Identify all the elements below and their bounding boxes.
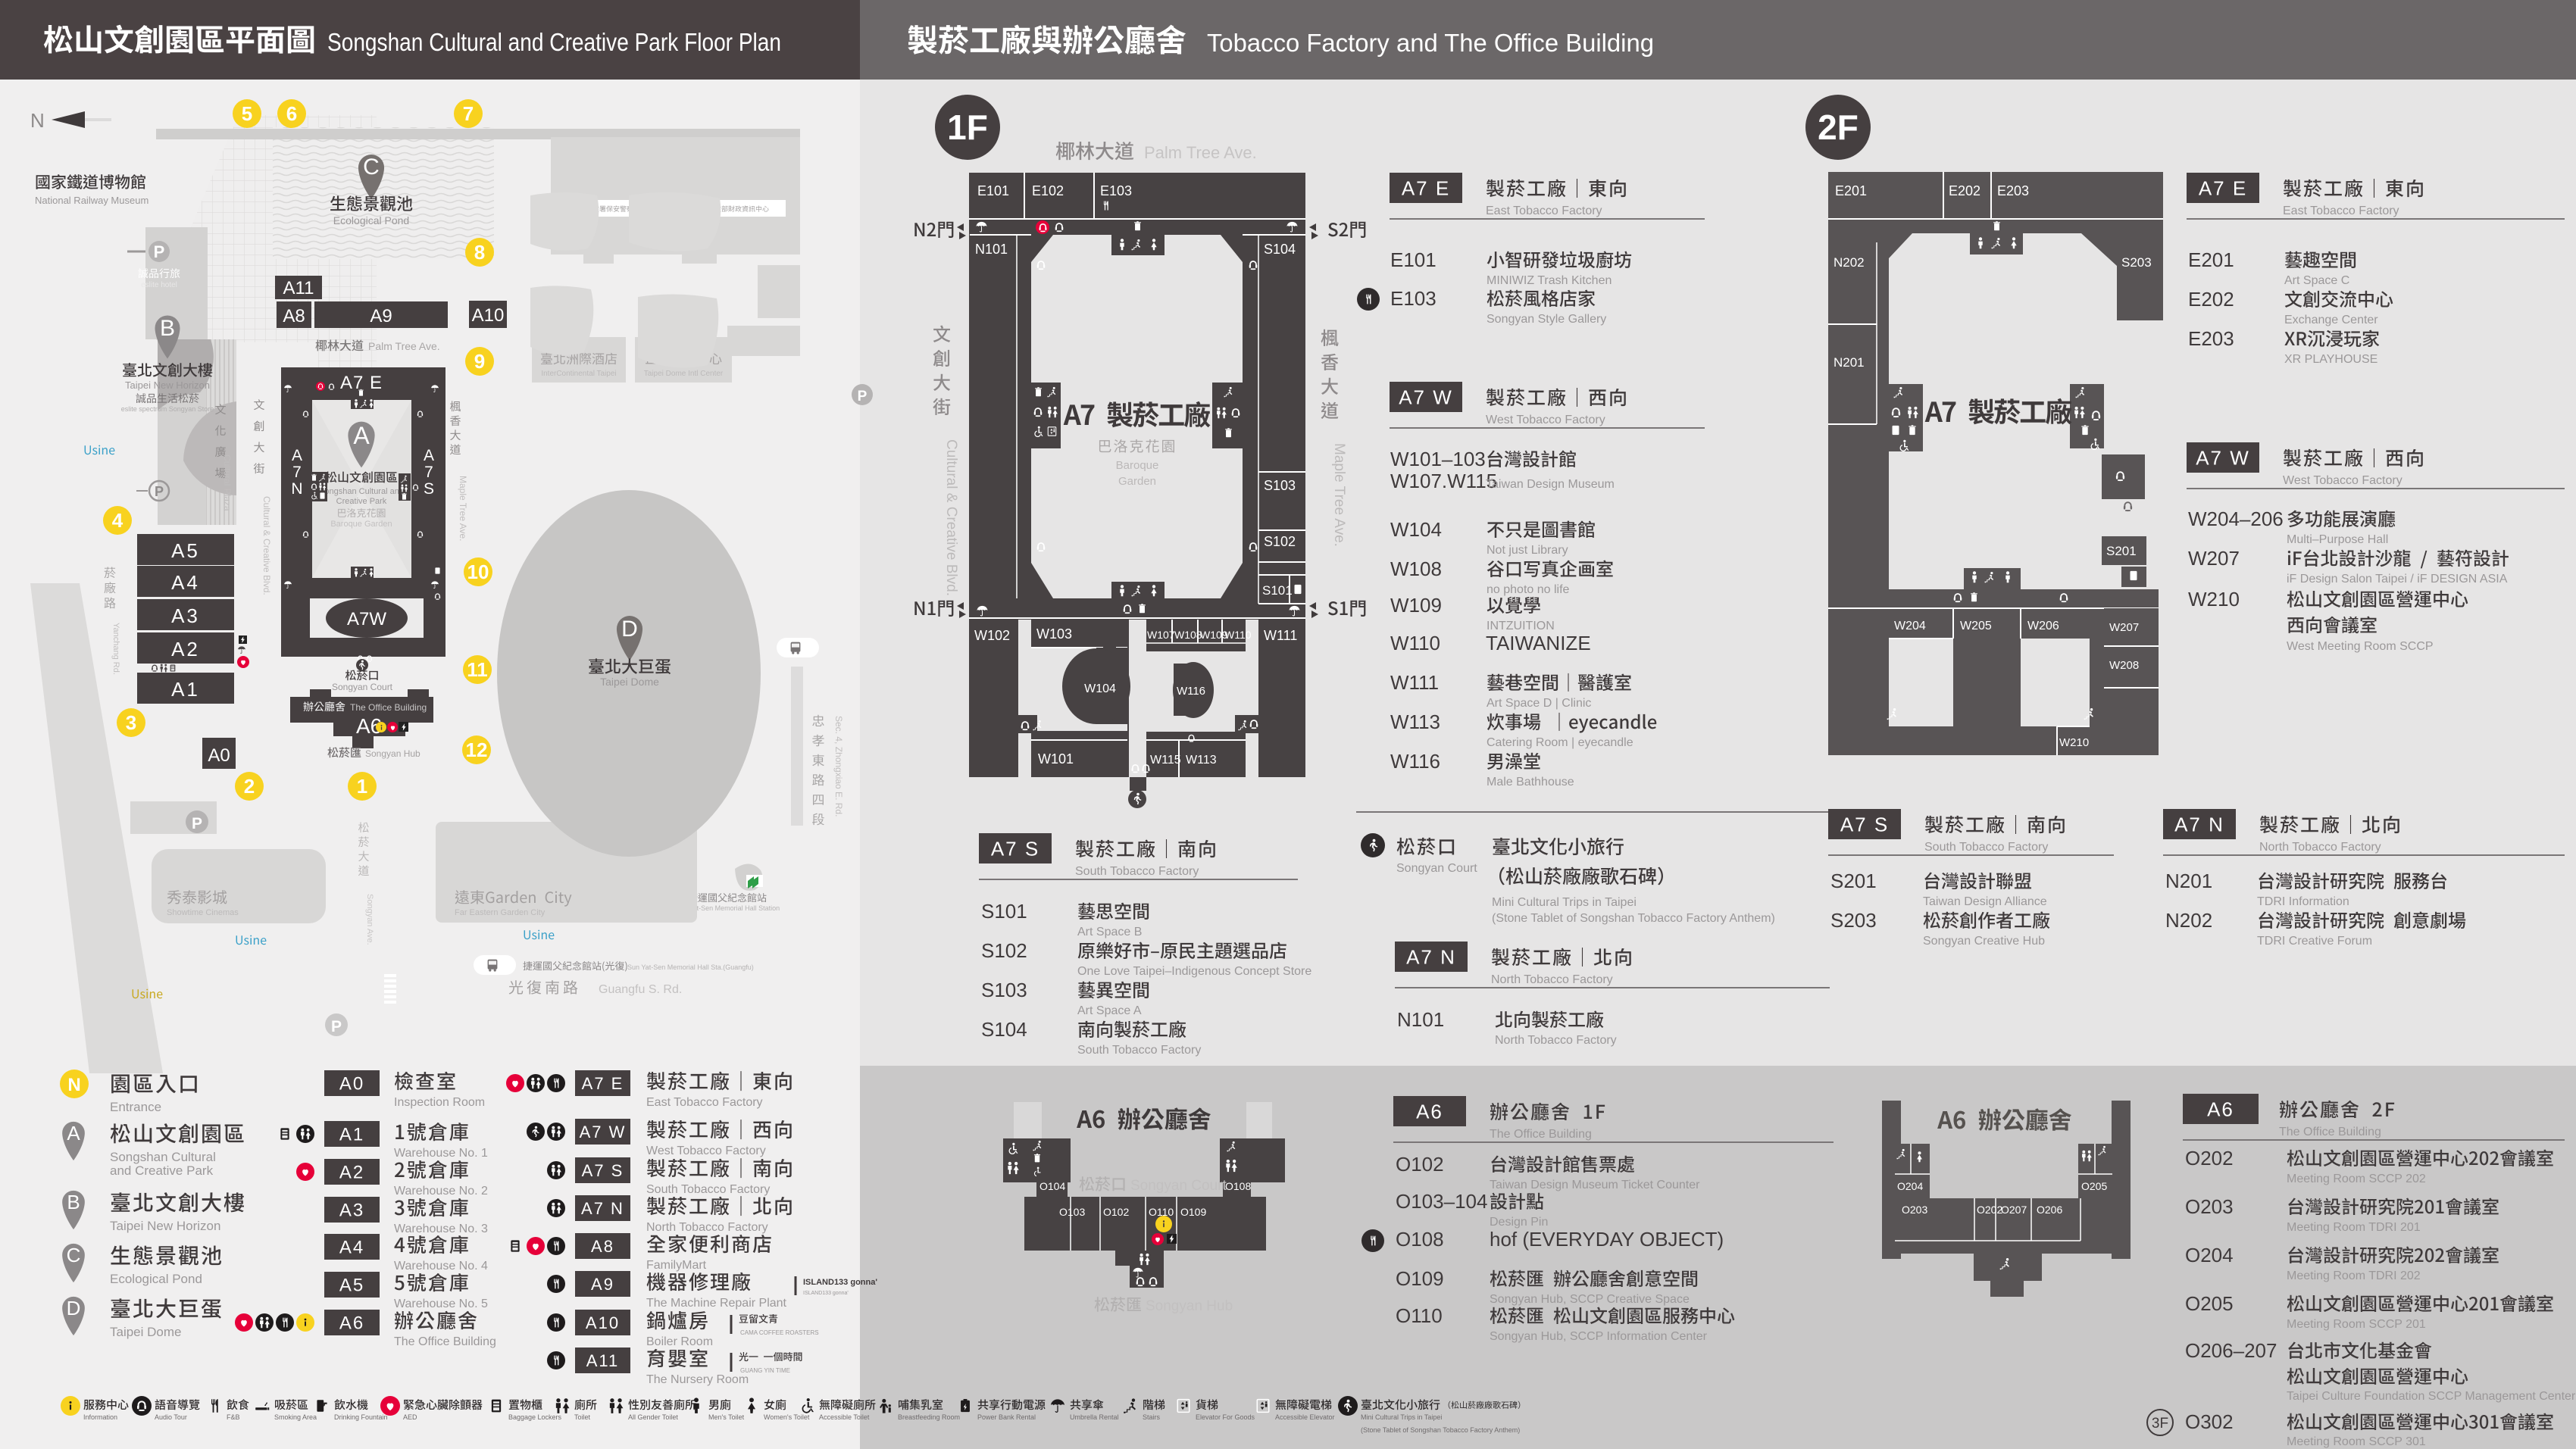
svg-text:O102: O102 [1103,1206,1129,1218]
svg-text:TDRI Creative Forum: TDRI Creative Forum [2257,935,2372,948]
svg-text:11: 11 [467,658,488,681]
svg-text:W113: W113 [1390,710,1440,733]
svg-text:North Tobacco Factory: North Tobacco Factory [2259,841,2381,854]
svg-text:Songyan Court: Songyan Court [1396,862,1477,875]
svg-text:A5: A5 [171,539,200,562]
svg-text:ISLAND133 gonna': ISLAND133 gonna' [803,1278,877,1287]
svg-text:O205: O205 [2081,1180,2107,1192]
svg-text:The Machine Repair Plant: The Machine Repair Plant [646,1297,787,1310]
svg-text:S203: S203 [1830,909,1877,932]
svg-text:W210: W210 [2059,736,2089,749]
svg-text:Taipei Dome Intl Center: Taipei Dome Intl Center [644,370,724,378]
svg-text:W207: W207 [2188,547,2240,570]
svg-text:O102: O102 [1396,1153,1444,1176]
svg-text:Taiwan Design Museum Ticket Co: Taiwan Design Museum Ticket Counter [1490,1179,1700,1191]
svg-text:A8: A8 [591,1237,614,1256]
svg-text:N: N [291,480,302,498]
svg-text:W206: W206 [2027,620,2059,632]
svg-text:Palm Tree Ave.: Palm Tree Ave. [368,340,440,352]
svg-text:N: N [30,109,45,132]
svg-text:W115: W115 [1150,754,1181,767]
svg-text:no photo no life: no photo no life [1487,583,1570,596]
svg-text:O205: O205 [2185,1292,2234,1315]
svg-text:Songyan Style Gallery: Songyan Style Gallery [1487,313,1606,326]
svg-text:Catering Room | eyecandle: Catering Room | eyecandle [1487,736,1633,749]
svg-text:ISLAND133 gonna': ISLAND133 gonna' [803,1291,849,1296]
svg-text:The Office Building: The Office Building [1490,1128,1592,1141]
svg-text:National Railway Museum: National Railway Museum [35,195,148,206]
svg-text:A7 N: A7 N [2174,813,2224,835]
svg-text:W210: W210 [2188,588,2240,611]
svg-text:A8: A8 [283,306,305,326]
svg-text:South Tobacco Factory: South Tobacco Factory [1075,865,1199,878]
svg-text:2: 2 [244,775,255,798]
svg-text:E201: E201 [2188,248,2234,271]
svg-text:Songshan Cultural and: Songshan Cultural and [319,487,404,496]
svg-text:W111: W111 [1264,628,1297,643]
svg-text:O202: O202 [1977,1204,2002,1216]
svg-text:A6: A6 [1416,1100,1443,1123]
svg-text:AED: AED [403,1413,417,1421]
svg-text:O108: O108 [1396,1228,1444,1251]
svg-text:A7W: A7W [347,609,386,629]
svg-text:Taipei Culture Foundation SCCP: Taipei Culture Foundation SCCP Managemen… [2287,1390,2576,1403]
svg-text:Warehouse No. 1: Warehouse No. 1 [394,1147,488,1160]
svg-text:Songyan Creative Hub: Songyan Creative Hub [1923,935,2045,948]
svg-text:P: P [154,242,165,261]
svg-text:Baggage Lockers: Baggage Lockers [508,1413,562,1421]
svg-text:A7 W: A7 W [2196,446,2250,469]
svg-text:6: 6 [286,102,297,125]
svg-text:A2: A2 [339,1163,364,1183]
svg-text:S102: S102 [981,939,1027,962]
svg-text:Cultural & Creative Blvd.: Cultural & Creative Blvd. [261,496,272,595]
svg-text:A3: A3 [339,1201,364,1221]
svg-text:A0: A0 [208,745,230,766]
svg-text:A9: A9 [370,306,392,326]
svg-text:The Office Building: The Office Building [2279,1126,2381,1138]
svg-text:A0: A0 [339,1074,364,1095]
svg-text:Taiwan Design Museum: Taiwan Design Museum [1486,478,1615,491]
svg-text:Art Space C: Art Space C [2284,274,2349,287]
svg-text:Exchange Center: Exchange Center [2284,314,2378,326]
svg-text:A1: A1 [339,1125,364,1145]
svg-text:S203: S203 [2121,255,2152,270]
svg-text:O203: O203 [1902,1204,1927,1216]
svg-text:1F: 1F [947,108,988,147]
svg-text:Taipei New Horizon: Taipei New Horizon [110,1219,220,1233]
svg-text:E203: E203 [2188,327,2234,350]
svg-text:A1: A1 [171,678,200,701]
svg-text:P: P [858,389,868,404]
svg-text:S101: S101 [1262,583,1293,598]
svg-text:A11: A11 [283,278,314,298]
svg-text:A6: A6 [339,1313,364,1334]
svg-text:4: 4 [112,509,123,532]
svg-text:A: A [292,447,302,464]
svg-text:O206: O206 [2037,1204,2062,1216]
svg-text:Showtime Cinemas: Showtime Cinemas [167,908,239,917]
svg-text:W101: W101 [1038,751,1074,767]
svg-text:Songyan Ave.: Songyan Ave. [365,894,374,945]
svg-text:W109: W109 [1390,594,1442,617]
svg-text:Meeting Room SCCP 201: Meeting Room SCCP 201 [2287,1318,2426,1331]
svg-text:Creative Park: Creative Park [336,497,387,506]
svg-text:Songyan Hub, SCCP Information: Songyan Hub, SCCP Information Center [1490,1330,1708,1343]
svg-text:North Tobacco Factory: North Tobacco Factory [1491,973,1613,986]
svg-text:O302: O302 [2185,1410,2234,1433]
svg-text:Yanchang Rd.: Yanchang Rd. [111,623,120,675]
svg-text:A4: A4 [171,571,200,594]
svg-text:North Tobacco Factory: North Tobacco Factory [1495,1034,1617,1047]
svg-text:INTZUITION: INTZUITION [1487,620,1555,632]
svg-text:W110: W110 [1390,632,1440,654]
svg-text:B: B [67,1191,80,1213]
svg-text:W208: W208 [2109,659,2139,672]
svg-text:Information: Information [83,1413,117,1421]
svg-text:O109: O109 [1396,1267,1444,1290]
svg-text:A9: A9 [591,1275,614,1294]
svg-text:D: D [621,617,638,642]
svg-text:N: N [67,1075,80,1095]
svg-text:A: A [353,422,370,449]
svg-text:N101: N101 [975,242,1008,257]
svg-text:A7 E: A7 E [2199,176,2247,199]
svg-text:W110: W110 [1224,629,1252,641]
svg-text:West Tobacco Factory: West Tobacco Factory [1486,414,1605,426]
svg-text:Songshan Cultural: Songshan Cultural [110,1150,216,1164]
svg-text:Sec. 4, Zhongxiao E. Rd.: Sec. 4, Zhongxiao E. Rd. [833,716,844,817]
svg-text:Mini Cultural Trips in Taipei: Mini Cultural Trips in Taipei [1361,1413,1442,1421]
svg-text:7: 7 [463,102,474,125]
svg-text:A: A [424,447,434,464]
svg-text:Art Space A: Art Space A [1077,1004,1142,1017]
svg-text:E101: E101 [977,183,1009,198]
svg-text:12: 12 [466,739,488,761]
svg-text:Accessible Elevator: Accessible Elevator [1275,1413,1335,1421]
svg-text:E101: E101 [1390,248,1436,271]
svg-text:O104: O104 [1039,1180,1065,1192]
svg-text:Umbrella Rental: Umbrella Rental [1070,1413,1119,1421]
svg-text:A7 S: A7 S [582,1161,624,1180]
svg-text:Warehouse No. 4: Warehouse No. 4 [394,1260,488,1273]
svg-text:Palm Tree Ave.: Palm Tree Ave. [1144,143,1257,162]
svg-text:S103: S103 [981,979,1027,1001]
svg-text:P: P [331,1018,342,1035]
svg-text:3F: 3F [2152,1416,2168,1432]
svg-text:Far Eastern Garden City: Far Eastern Garden City [455,908,546,917]
svg-text:A7 N: A7 N [581,1199,624,1218]
svg-text:S104: S104 [1264,242,1296,257]
svg-text:O206–207: O206–207 [2185,1339,2277,1362]
svg-text:A11: A11 [586,1351,620,1370]
svg-text:The Office Building: The Office Building [350,702,427,713]
svg-text:Warehouse No. 3: Warehouse No. 3 [394,1223,488,1235]
svg-text:W205: W205 [1960,620,1992,632]
svg-text:Drinking Fountain: Drinking Fountain [334,1413,388,1421]
svg-text:eslite hotel: eslite hotel [141,281,177,289]
svg-text:Maple Tree Ave.: Maple Tree Ave. [458,476,468,542]
svg-text:W204: W204 [1894,620,1926,632]
svg-text:Ecological Pond: Ecological Pond [333,214,409,226]
svg-text:Warehouse No. 2: Warehouse No. 2 [394,1185,488,1198]
svg-text:O109: O109 [1180,1206,1206,1218]
svg-text:O204: O204 [1897,1180,1923,1192]
svg-text:Smoking Area: Smoking Area [274,1413,317,1421]
svg-text:Breastfeeding Room: Breastfeeding Room [898,1413,960,1421]
svg-text:Boiler Room: Boiler Room [646,1335,713,1348]
svg-text:Songyan Court: Songyan Court [1130,1178,1227,1194]
svg-text:W108: W108 [1174,629,1202,641]
svg-text:Taiwan Design Alliance: Taiwan Design Alliance [1923,895,2047,908]
svg-text:7: 7 [424,464,433,481]
svg-text:South Tobacco Factory: South Tobacco Factory [1077,1044,1201,1057]
svg-text:Elevator For Goods: Elevator For Goods [1196,1413,1255,1421]
svg-text:Baroque: Baroque [1116,459,1159,472]
svg-text:O108: O108 [1225,1180,1251,1192]
svg-text:8: 8 [474,241,485,264]
svg-text:Taipei New Horizon: Taipei New Horizon [125,379,210,391]
svg-text:East Tobacco Factory: East Tobacco Factory [1486,205,1602,217]
svg-text:All Gender Toilet: All Gender Toilet [628,1413,678,1421]
svg-text:W102: W102 [974,628,1010,643]
svg-text:O204: O204 [2185,1244,2234,1266]
svg-text:O203: O203 [2185,1195,2234,1218]
svg-text:East Tobacco Factory: East Tobacco Factory [2283,205,2399,217]
svg-text:C: C [363,155,380,180]
svg-text:O207: O207 [2001,1204,2027,1216]
svg-text:A7 S: A7 S [991,837,1039,860]
svg-text:W104: W104 [1390,518,1442,541]
svg-text:Multi–Purpose Hall: Multi–Purpose Hall [2287,533,2388,546]
svg-text:Cultural & Creative Blvd.: Cultural & Creative Blvd. [943,439,959,596]
svg-text:TDRI Information: TDRI Information [2257,895,2349,908]
svg-text:One Love Taipei–Indigenous Con: One Love Taipei–Indigenous Concept Store [1077,965,1311,978]
svg-text:Male Bathhouse: Male Bathhouse [1487,776,1574,789]
svg-text:GUANG YIN TIME: GUANG YIN TIME [740,1367,790,1374]
svg-text:eslite spectrum Songyan Store: eslite spectrum Songyan Store [121,405,214,413]
svg-text:O202: O202 [2185,1147,2234,1170]
svg-text:W116: W116 [1390,750,1440,773]
svg-text:Art Space D | Clinic: Art Space D | Clinic [1487,697,1591,710]
svg-text:A2: A2 [171,638,200,660]
svg-text:Ecological Pond: Ecological Pond [110,1272,202,1286]
svg-text:W207: W207 [2109,621,2139,634]
svg-text:Audio Tour: Audio Tour [155,1413,187,1421]
svg-text:TAIWANIZE: TAIWANIZE [1486,632,1591,654]
svg-text:F&B: F&B [227,1413,240,1421]
svg-text:A7 W: A7 W [580,1123,627,1141]
svg-text:A7 N: A7 N [1406,945,1456,968]
svg-text:N202: N202 [2165,909,2212,932]
svg-text:Meeting Room SCCP 301: Meeting Room SCCP 301 [2287,1435,2426,1448]
svg-text:D: D [67,1297,81,1319]
svg-text:InterContinental Taipei: InterContinental Taipei [541,370,616,378]
svg-text:A5: A5 [339,1276,364,1296]
svg-text:O103: O103 [1059,1206,1085,1218]
svg-text:A7 W: A7 W [1399,386,1453,408]
svg-text:E202: E202 [1949,183,1980,198]
svg-text:Maple Tree Ave.: Maple Tree Ave. [1331,443,1347,547]
svg-text:N201: N201 [1834,355,1865,370]
svg-text:E103: E103 [1390,287,1436,310]
svg-text:W107.W115: W107.W115 [1390,470,1497,492]
svg-text:O110: O110 [1396,1304,1443,1327]
svg-text:A10: A10 [472,305,505,326]
svg-text:A4: A4 [339,1238,364,1258]
svg-text:W113: W113 [1186,754,1217,767]
svg-text:Baroque Garden: Baroque Garden [330,520,392,529]
svg-text:S102: S102 [1264,534,1296,549]
svg-text:E201: E201 [1835,183,1867,198]
svg-text:Songyan Court: Songyan Court [332,682,393,692]
svg-text:A: A [67,1122,80,1145]
svg-text:Accessible Toilet: Accessible Toilet [819,1413,870,1421]
svg-text:CAMA COFFEE ROASTERS: CAMA COFFEE ROASTERS [740,1329,819,1336]
svg-text:E202: E202 [2188,288,2234,311]
svg-text:Sun Yat-Sen Memorial Hall Sta.: Sun Yat-Sen Memorial Hall Sta.(Guangfu) [627,963,754,971]
svg-text:Songyan Hub: Songyan Hub [365,748,420,759]
svg-text:W111: W111 [1390,671,1439,694]
svg-text:Toilet: Toilet [574,1413,591,1421]
svg-text:N101: N101 [1397,1008,1444,1031]
svg-text:9: 9 [474,350,485,373]
svg-text:S: S [424,480,434,498]
svg-text:Songyan Hub, SCCP Creative Spa: Songyan Hub, SCCP Creative Space [1490,1293,1690,1306]
svg-text:Taipei Dome: Taipei Dome [110,1325,182,1339]
svg-text:North Tobacco Factory: North Tobacco Factory [646,1221,768,1234]
svg-text:W101–103: W101–103 [1390,448,1486,470]
svg-text:Inspection Room: Inspection Room [394,1096,485,1109]
svg-text:E103: E103 [1100,183,1132,198]
svg-text:West Tobacco Factory: West Tobacco Factory [2283,474,2402,487]
svg-text:S101: S101 [981,900,1027,923]
svg-text:(Stone Tablet of Songshan Toba: (Stone Tablet of Songshan Tobacco Factor… [1492,912,1775,925]
svg-text:O103–104: O103–104 [1396,1190,1487,1213]
svg-text:E203: E203 [1997,183,2029,198]
svg-text:Entrance: Entrance [110,1100,161,1114]
svg-text:Mini Cultural Trips in Taipei: Mini Cultural Trips in Taipei [1492,896,1637,909]
svg-text:Meeting Room SCCP 202: Meeting Room SCCP 202 [2287,1173,2426,1185]
svg-text:(Stone Tablet of Songshan Toba: (Stone Tablet of Songshan Tobacco Factor… [1361,1426,1520,1434]
svg-text:iF Design Salon Taipei / iF DE: iF Design Salon Taipei / iF DESIGN ASIA [2287,573,2508,586]
svg-text:Garden: Garden [1118,475,1156,488]
svg-text:W107: W107 [1147,629,1175,641]
svg-text:A7 S: A7 S [1840,813,1889,835]
svg-text:Songyan Hub: Songyan Hub [1146,1298,1233,1314]
svg-text:and Creative Park: and Creative Park [110,1163,214,1178]
svg-text:The Office Building: The Office Building [394,1335,496,1348]
svg-text:N202: N202 [1834,255,1865,270]
svg-text:1: 1 [357,775,367,798]
svg-text:A7 E: A7 E [582,1074,624,1093]
svg-text:The Nursery Room: The Nursery Room [646,1373,749,1386]
svg-text:A3: A3 [171,604,200,627]
svg-text:Men's Toilet: Men's Toilet [708,1413,745,1421]
svg-text:Power Bank Rental: Power Bank Rental [977,1413,1036,1421]
svg-text:Songshan Cultural and Creative: Songshan Cultural and Creative Park Floo… [327,28,781,56]
svg-text:E102: E102 [1032,183,1064,198]
svg-text:East Tobacco Factory: East Tobacco Factory [646,1096,763,1109]
svg-text:Stairs: Stairs [1143,1413,1161,1421]
svg-text:W104: W104 [1084,682,1116,695]
svg-text:C: C [67,1244,81,1266]
svg-text:A7 E: A7 E [1402,176,1450,199]
svg-text:S201: S201 [1830,870,1877,892]
svg-text:Tobacco Factory and The Office: Tobacco Factory and The Office Building [1207,29,1654,57]
svg-text:5: 5 [242,102,252,125]
svg-text:W103: W103 [1036,626,1072,642]
svg-text:P: P [155,484,164,499]
svg-text:Art Space B: Art Space B [1077,926,1142,938]
svg-text:Guangfu S. Rd.: Guangfu S. Rd. [599,983,682,996]
svg-text:FamilyMart: FamilyMart [646,1259,707,1272]
svg-text:West Meeting Room SCCP: West Meeting Room SCCP [2287,640,2434,653]
svg-text:P: P [192,815,202,832]
svg-text:Cultural Plaza: Cultural Plaza [222,454,233,511]
svg-text:Meeting Room TDRI 201: Meeting Room TDRI 201 [2287,1221,2421,1234]
svg-text:Not just Library: Not just Library [1487,544,1568,557]
svg-text:South Tobacco Factory: South Tobacco Factory [1924,841,2048,854]
svg-text:N201: N201 [2165,870,2212,892]
svg-text:10: 10 [467,561,489,583]
svg-text:South Tobacco Factory: South Tobacco Factory [646,1183,770,1196]
svg-text:XR PLAYHOUSE: XR PLAYHOUSE [2284,353,2377,366]
svg-text:S201: S201 [2106,544,2137,558]
svg-text:S103: S103 [1264,478,1296,493]
svg-text:A6: A6 [2207,1098,2234,1120]
svg-text:S104: S104 [981,1018,1027,1041]
svg-text:W108: W108 [1390,557,1442,580]
svg-text:Women's Toilet: Women's Toilet [764,1413,810,1421]
svg-text:Warehouse No. 5: Warehouse No. 5 [394,1298,488,1310]
svg-text:A10: A10 [586,1313,620,1332]
svg-text:West Tobacco Factory: West Tobacco Factory [646,1145,766,1157]
svg-text:2F: 2F [1818,108,1859,147]
svg-text:B: B [160,316,175,341]
svg-text:Taipei Dome: Taipei Dome [600,676,659,688]
svg-text:W116: W116 [1177,685,1205,698]
svg-text:MINIWIZ Trash Kitchen: MINIWIZ Trash Kitchen [1487,274,1612,287]
svg-text:7: 7 [292,464,302,481]
svg-text:Meeting Room TDRI 202: Meeting Room TDRI 202 [2287,1269,2421,1282]
svg-text:3: 3 [126,711,136,734]
svg-text:hof (EVERYDAY OBJECT): hof (EVERYDAY OBJECT) [1490,1228,1724,1251]
svg-text:W204–206: W204–206 [2188,507,2284,530]
svg-text:Design Pin: Design Pin [1490,1216,1548,1229]
